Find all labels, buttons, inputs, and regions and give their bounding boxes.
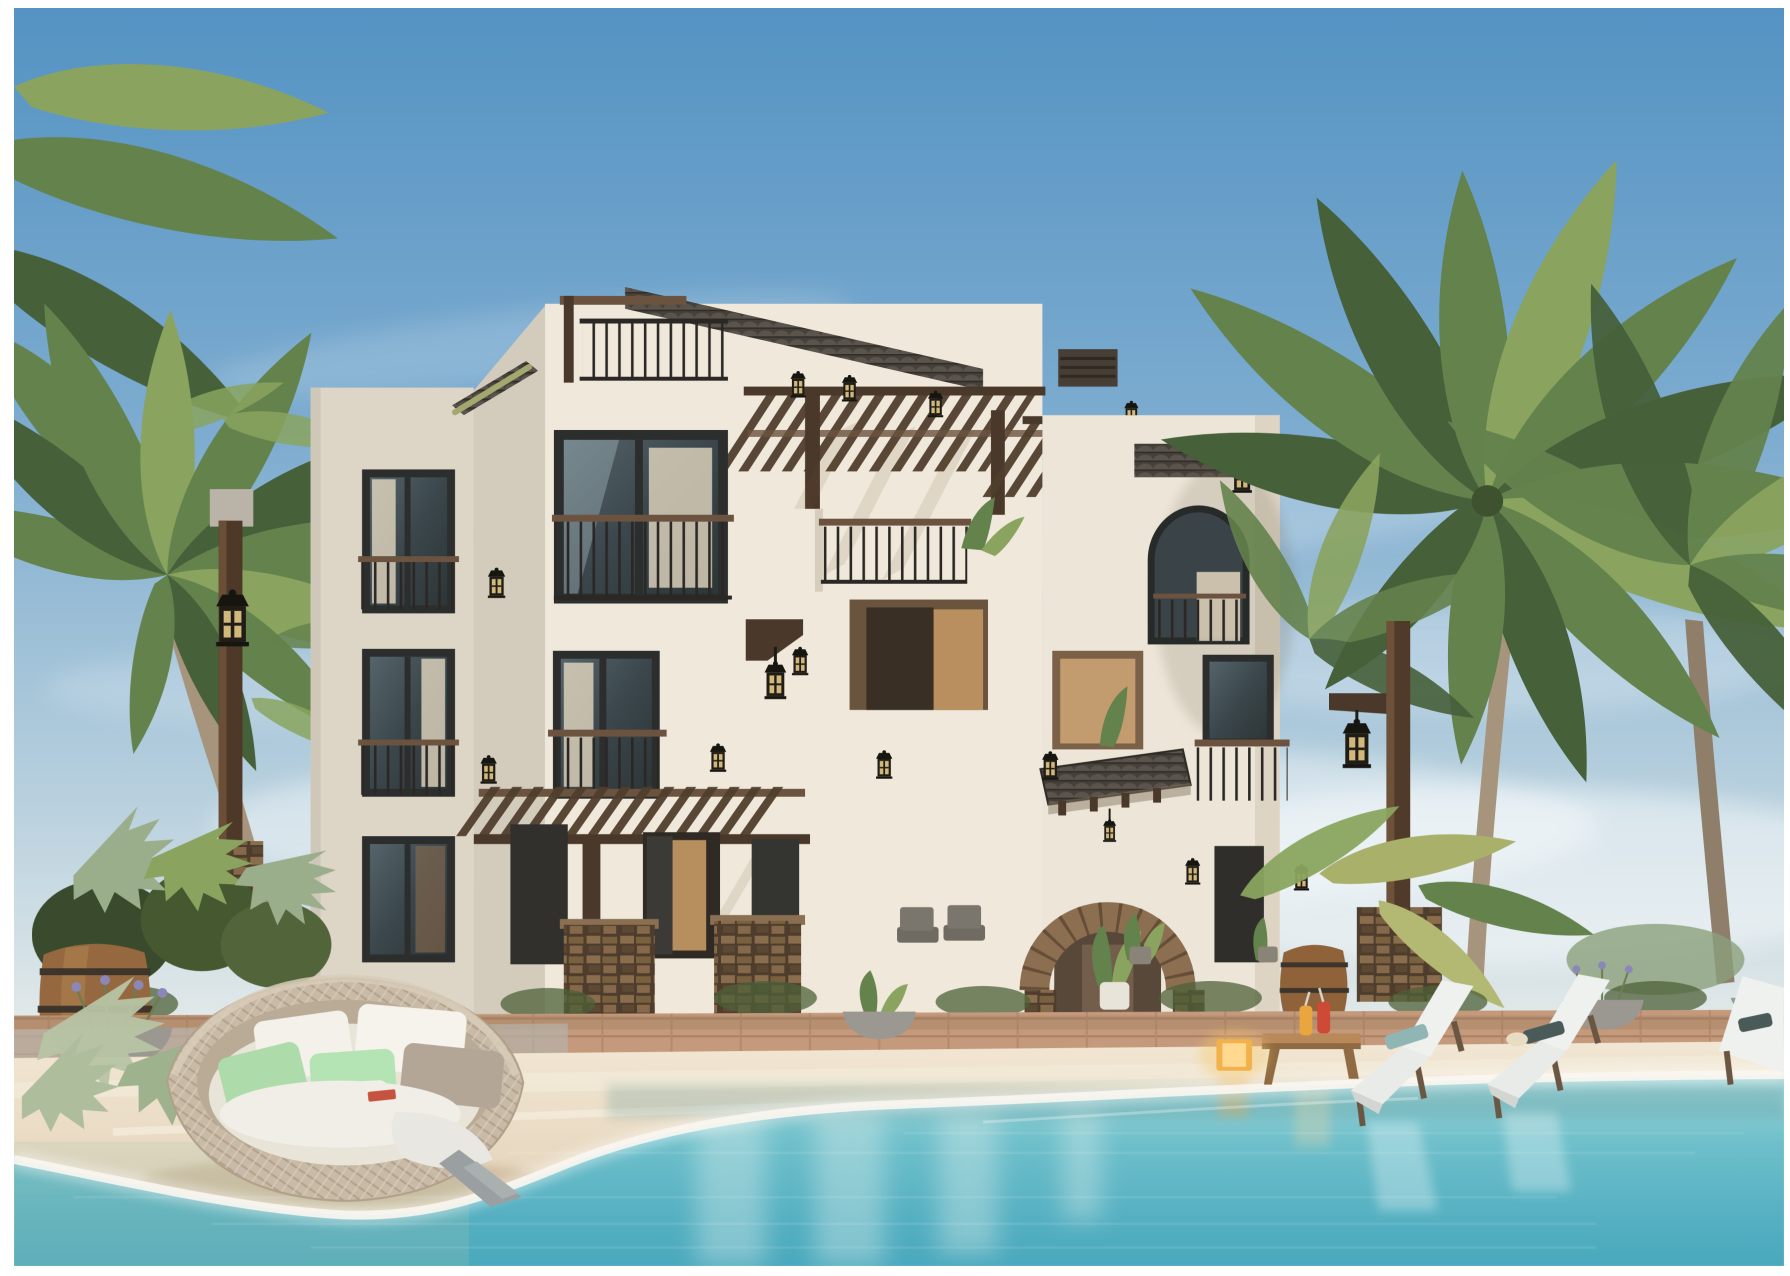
- wall-sconce: [488, 568, 505, 598]
- hanging-lantern: [765, 661, 787, 699]
- louvre-vent: [1058, 349, 1117, 386]
- pergola-lantern: [791, 371, 806, 398]
- left-wing: [311, 306, 545, 1029]
- image-caption: Sunny photorealistic rendering of a thre…: [0, 16, 1, 17]
- pergola-lantern: [842, 375, 857, 402]
- wall-sconce: [876, 750, 892, 778]
- left-wing-window: [358, 469, 459, 613]
- left-wing-window: [358, 649, 459, 797]
- wall-sconce: [710, 743, 726, 771]
- left-wing-window: [362, 836, 455, 962]
- main-window-third-floor: [552, 430, 734, 604]
- wall-sconce: [792, 647, 808, 675]
- awning-pendant: [1103, 819, 1116, 842]
- pergola-lantern: [928, 391, 943, 418]
- post-lantern: [216, 589, 249, 646]
- right-tower: [1025, 415, 1309, 1035]
- window-second-floor: [548, 651, 667, 799]
- wall-sconce: [1042, 751, 1058, 779]
- villa-render: Sunny photorealistic rendering of a thre…: [0, 0, 1790, 1276]
- render-canvas: Sunny photorealistic rendering of a thre…: [14, 8, 1784, 1266]
- hanging-lantern: [1343, 719, 1371, 768]
- sun-hat: [1506, 1032, 1528, 1046]
- right-niche-window: [1052, 651, 1143, 750]
- wall-sconce: [1185, 858, 1200, 885]
- wall-sconce: [480, 755, 496, 783]
- glow-cube-lantern: [1199, 1029, 1270, 1080]
- wine-barrel-right: [1280, 945, 1349, 1018]
